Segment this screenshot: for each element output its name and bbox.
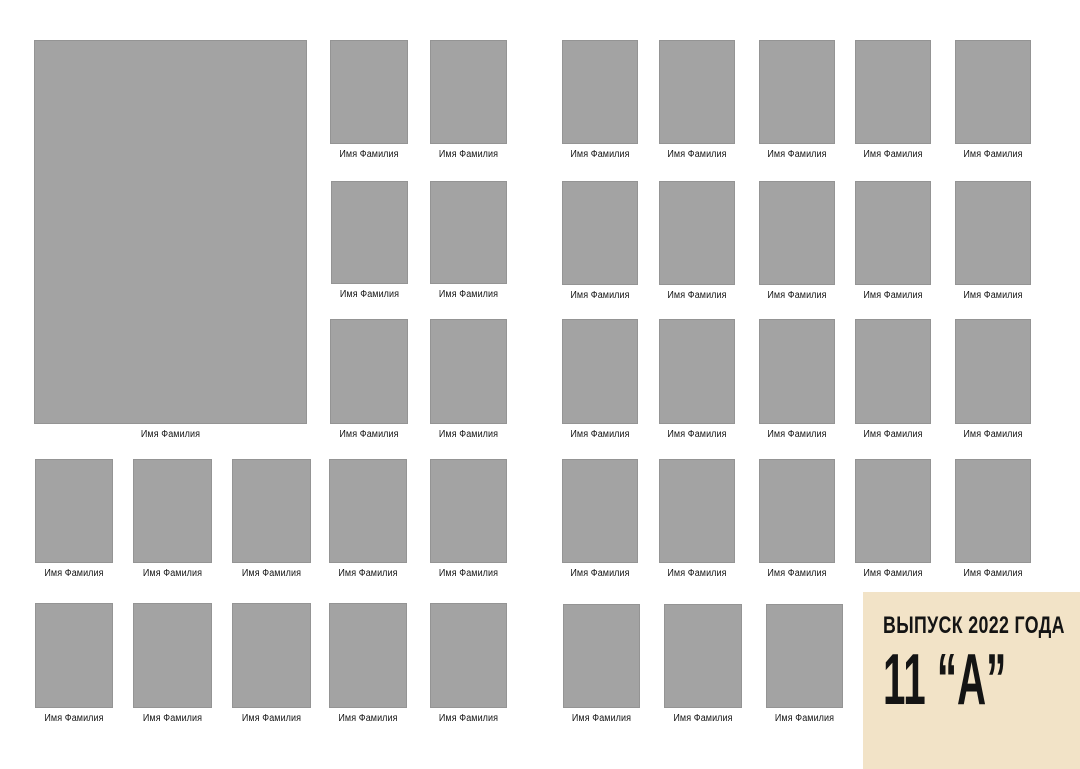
graduation-year-label: ВЫПУСК 2022 ГОДА	[883, 612, 1065, 640]
photo-cell: Имя Фамилия	[34, 40, 307, 424]
photo-cell: Имя Фамилия	[855, 40, 931, 144]
photo-placeholder	[659, 319, 735, 424]
photo-placeholder	[133, 459, 212, 563]
class-name-label: 11 “А”	[883, 644, 1006, 716]
photo-cell: Имя Фамилия	[759, 459, 835, 563]
photo-placeholder	[855, 40, 931, 144]
photo-placeholder	[331, 181, 408, 284]
photo-placeholder	[562, 181, 638, 285]
photo-placeholder	[330, 40, 408, 144]
photo-placeholder	[232, 603, 311, 708]
photo-placeholder	[955, 181, 1031, 285]
photo-placeholder	[430, 603, 507, 708]
photo-cell: Имя Фамилия	[664, 604, 742, 708]
photo-caption: Имя Фамилия	[12, 430, 330, 440]
photo-cell: Имя Фамилия	[329, 603, 407, 708]
photo-cell: Имя Фамилия	[430, 181, 507, 284]
photo-cell: Имя Фамилия	[232, 603, 311, 708]
photo-placeholder	[766, 604, 843, 708]
photo-cell: Имя Фамилия	[563, 604, 640, 708]
photo-placeholder	[562, 40, 638, 144]
photo-cell: Имя Фамилия	[659, 181, 735, 285]
photo-cell: Имя Фамилия	[759, 319, 835, 424]
photo-placeholder	[430, 181, 507, 284]
photo-cell: Имя Фамилия	[430, 459, 507, 563]
photo-cell: Имя Фамилия	[330, 319, 408, 424]
photo-placeholder	[759, 181, 835, 285]
class-label-block: ВЫПУСК 2022 ГОДА 11 “А”	[863, 592, 1080, 769]
photo-cell: Имя Фамилия	[855, 459, 931, 563]
photo-cell: Имя Фамилия	[330, 40, 408, 144]
photo-placeholder	[955, 40, 1031, 144]
photo-placeholder	[430, 319, 507, 424]
photo-caption: Имя Фамилия	[398, 430, 539, 440]
photo-cell: Имя Фамилия	[35, 603, 113, 708]
photo-cell: Имя Фамилия	[562, 459, 638, 563]
photo-cell: Имя Фамилия	[955, 181, 1031, 285]
photo-cell: Имя Фамилия	[955, 319, 1031, 424]
photo-cell: Имя Фамилия	[232, 459, 311, 563]
photo-cell: Имя Фамилия	[659, 40, 735, 144]
photo-cell: Имя Фамилия	[430, 603, 507, 708]
photo-placeholder	[133, 603, 212, 708]
album-spread: Имя Фамилия Имя Фамилия Имя Фамилия Имя …	[0, 0, 1080, 769]
photo-cell: Имя Фамилия	[759, 181, 835, 285]
photo-caption: Имя Фамилия	[734, 714, 875, 724]
photo-cell: Имя Фамилия	[659, 319, 735, 424]
photo-cell: Имя Фамилия	[759, 40, 835, 144]
photo-placeholder	[232, 459, 311, 563]
photo-placeholder	[664, 604, 742, 708]
photo-caption: Имя Фамилия	[398, 290, 539, 300]
photo-cell: Имя Фамилия	[955, 40, 1031, 144]
photo-placeholder	[330, 319, 408, 424]
photo-placeholder	[35, 603, 113, 708]
photo-cell: Имя Фамилия	[133, 459, 212, 563]
photo-caption: Имя Фамилия	[923, 569, 1063, 579]
photo-cell: Имя Фамилия	[430, 319, 507, 424]
photo-placeholder	[34, 40, 307, 424]
photo-placeholder	[35, 459, 113, 563]
photo-placeholder	[955, 319, 1031, 424]
photo-placeholder	[855, 181, 931, 285]
photo-cell: Имя Фамилия	[855, 181, 931, 285]
photo-placeholder	[563, 604, 640, 708]
photo-caption: Имя Фамилия	[923, 430, 1063, 440]
photo-placeholder	[955, 459, 1031, 563]
photo-placeholder	[659, 459, 735, 563]
photo-placeholder	[562, 319, 638, 424]
photo-cell: Имя Фамилия	[331, 181, 408, 284]
photo-caption: Имя Фамилия	[398, 714, 539, 724]
photo-cell: Имя Фамилия	[329, 459, 407, 563]
photo-placeholder	[855, 319, 931, 424]
photo-placeholder	[329, 459, 407, 563]
photo-caption: Имя Фамилия	[398, 569, 539, 579]
photo-cell: Имя Фамилия	[766, 604, 843, 708]
photo-cell: Имя Фамилия	[855, 319, 931, 424]
photo-cell: Имя Фамилия	[562, 181, 638, 285]
photo-placeholder	[430, 40, 507, 144]
photo-placeholder	[759, 459, 835, 563]
photo-placeholder	[329, 603, 407, 708]
photo-caption: Имя Фамилия	[923, 291, 1063, 301]
photo-cell: Имя Фамилия	[659, 459, 735, 563]
photo-cell: Имя Фамилия	[562, 319, 638, 424]
photo-placeholder	[430, 459, 507, 563]
photo-placeholder	[855, 459, 931, 563]
photo-cell: Имя Фамилия	[133, 603, 212, 708]
photo-cell: Имя Фамилия	[35, 459, 113, 563]
photo-placeholder	[562, 459, 638, 563]
photo-placeholder	[659, 181, 735, 285]
photo-placeholder	[759, 40, 835, 144]
photo-caption: Имя Фамилия	[398, 150, 539, 160]
photo-caption: Имя Фамилия	[923, 150, 1063, 160]
photo-placeholder	[659, 40, 735, 144]
photo-cell: Имя Фамилия	[562, 40, 638, 144]
photo-placeholder	[759, 319, 835, 424]
photo-cell: Имя Фамилия	[430, 40, 507, 144]
photo-cell: Имя Фамилия	[955, 459, 1031, 563]
